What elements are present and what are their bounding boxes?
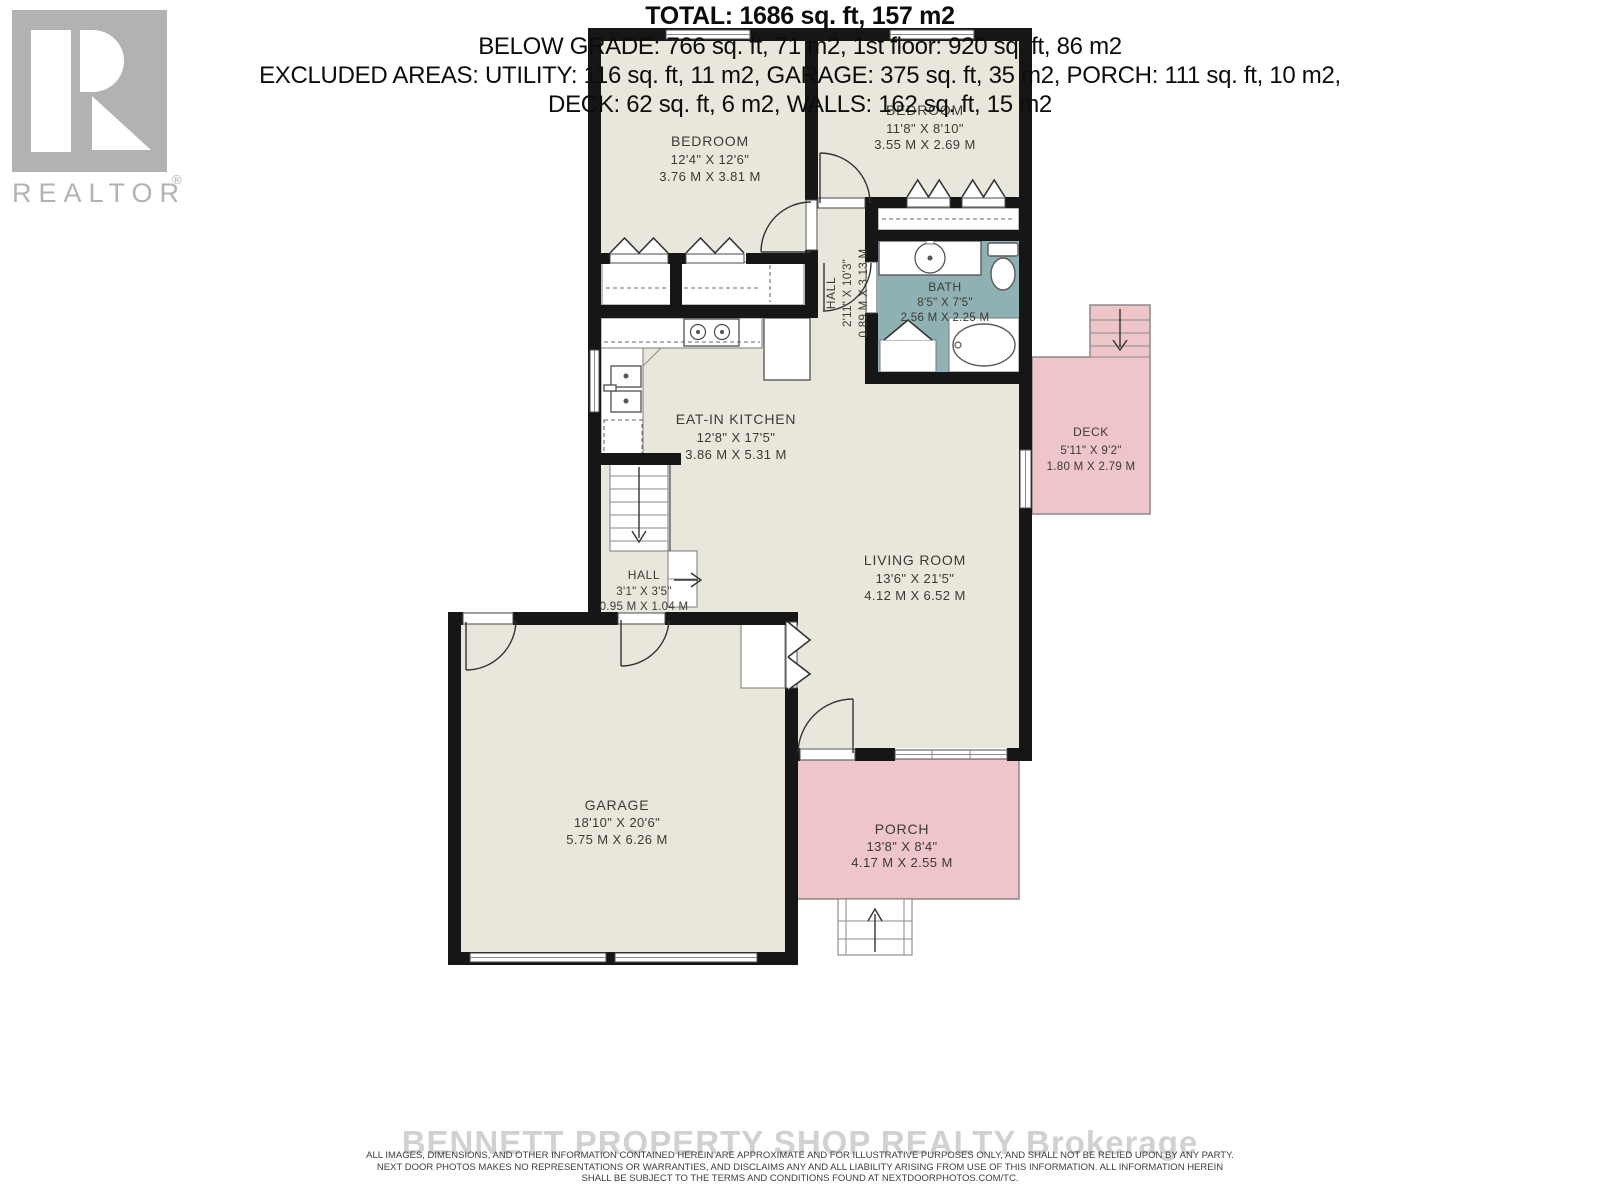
room-dimensions-imperial: 11'8" X 8'10" <box>886 121 964 136</box>
bath-vanity <box>879 238 981 275</box>
room-dimensions-metric: 3.55 M X 2.69 M <box>874 137 975 152</box>
garage-door-left <box>470 953 606 962</box>
room-name: EAT-IN KITCHEN <box>676 411 797 427</box>
summary-excluded-areas-2: DECK: 62 sq. ft, 6 m2, WALLS: 162 sq. ft… <box>0 90 1600 119</box>
room-dimensions-metric: 5.75 M X 6.26 M <box>566 832 667 847</box>
hall-garage-door-gap <box>618 613 665 624</box>
room-dimensions-imperial: 3'1" X 3'5" <box>616 586 672 598</box>
garage-floor <box>448 612 785 965</box>
disclaimer-line-1: ALL IMAGES, DIMENSIONS, AND OTHER INFORM… <box>0 1150 1600 1162</box>
summary-below-grade: BELOW GRADE: 766 sq. ft, 71 m2, 1st floo… <box>0 32 1600 61</box>
room-dimensions-metric: 4.12 M X 6.52 M <box>864 588 965 603</box>
deck-area <box>1032 305 1150 514</box>
area-summary: TOTAL: 1686 sq. ft, 157 m2 BELOW GRADE: … <box>0 0 1600 119</box>
disclaimer: ALL IMAGES, DIMENSIONS, AND OTHER INFORM… <box>0 1150 1600 1185</box>
room-name: DECK <box>1073 425 1109 439</box>
room-dimensions-imperial: 12'8" X 17'5" <box>697 430 776 445</box>
deck-slider <box>1020 450 1031 508</box>
bedroom1-door-gap <box>806 200 817 250</box>
living-room-label: LIVING ROOM 13'6" X 21'5" 4.12 M X 6.52 … <box>864 552 966 603</box>
room-name: BATH <box>928 280 962 294</box>
living-room-window <box>895 750 1007 759</box>
room-dimensions-metric: 2.56 M X 2.25 M <box>901 312 990 324</box>
room-dimensions-imperial: 12'4" X 12'6" <box>671 152 750 167</box>
room-dimensions-metric: 4.17 M X 2.55 M <box>851 855 952 870</box>
room-name: PORCH <box>875 821 930 837</box>
room-dimensions-imperial: 5'11" X 9'2" <box>1060 445 1121 457</box>
disclaimer-line-2: NEXT DOOR PHOTOS MAKES NO REPRESENTATION… <box>0 1162 1600 1174</box>
room-name: HALL <box>824 277 838 309</box>
bedroom2-door-gap <box>818 198 865 208</box>
bedroom1-label: BEDROOM 12'4" X 12'6" 3.76 M X 3.81 M <box>659 133 760 184</box>
summary-total: TOTAL: 1686 sq. ft, 157 m2 <box>0 0 1600 32</box>
fridge <box>764 318 810 380</box>
disclaimer-line-3: SHALL BE SUBJECT TO THE TERMS AND CONDIT… <box>0 1173 1600 1185</box>
garage-side-door-gap <box>463 613 513 624</box>
room-dimensions-imperial: 13'8" X 8'4" <box>866 839 937 854</box>
realtor-logo-text: REALTOR <box>12 178 186 208</box>
garage-door-right <box>615 953 757 962</box>
floorplan-page: REALTOR ® <box>0 0 1600 1200</box>
room-dimensions-metric: 0.89 M X 3.13 M <box>858 249 870 338</box>
summary-excluded-areas: EXCLUDED AREAS: UTILITY: 116 sq. ft, 11 … <box>0 61 1600 90</box>
porch-steps <box>838 899 912 955</box>
kitchen-window <box>590 350 599 412</box>
room-name: BEDROOM <box>671 133 749 149</box>
room-dimensions-imperial: 18'10" X 20'6" <box>574 815 660 830</box>
bathtub <box>949 318 1019 372</box>
toilet <box>988 243 1018 290</box>
floorplan-drawing: REALTOR ® <box>0 0 1600 1200</box>
room-name: GARAGE <box>585 797 650 813</box>
room-name: HALL <box>628 568 660 582</box>
front-door-gap <box>800 749 855 760</box>
entry-closet <box>741 621 785 688</box>
room-name: LIVING ROOM <box>864 552 966 568</box>
room-dimensions-imperial: 8'5" X 7'5" <box>917 297 973 309</box>
room-dimensions-metric: 0.95 M X 1.04 M <box>600 601 689 613</box>
room-dimensions-imperial: 2'11" X 10'3" <box>842 259 854 327</box>
bedroom1-closet <box>602 262 804 305</box>
room-dimensions-metric: 3.86 M X 5.31 M <box>685 447 786 462</box>
room-dimensions-metric: 3.76 M X 3.81 M <box>659 169 760 184</box>
room-dimensions-metric: 1.80 M X 2.79 M <box>1047 461 1136 473</box>
room-dimensions-imperial: 13'6" X 21'5" <box>876 571 955 586</box>
realtor-logo-registered: ® <box>172 172 182 187</box>
